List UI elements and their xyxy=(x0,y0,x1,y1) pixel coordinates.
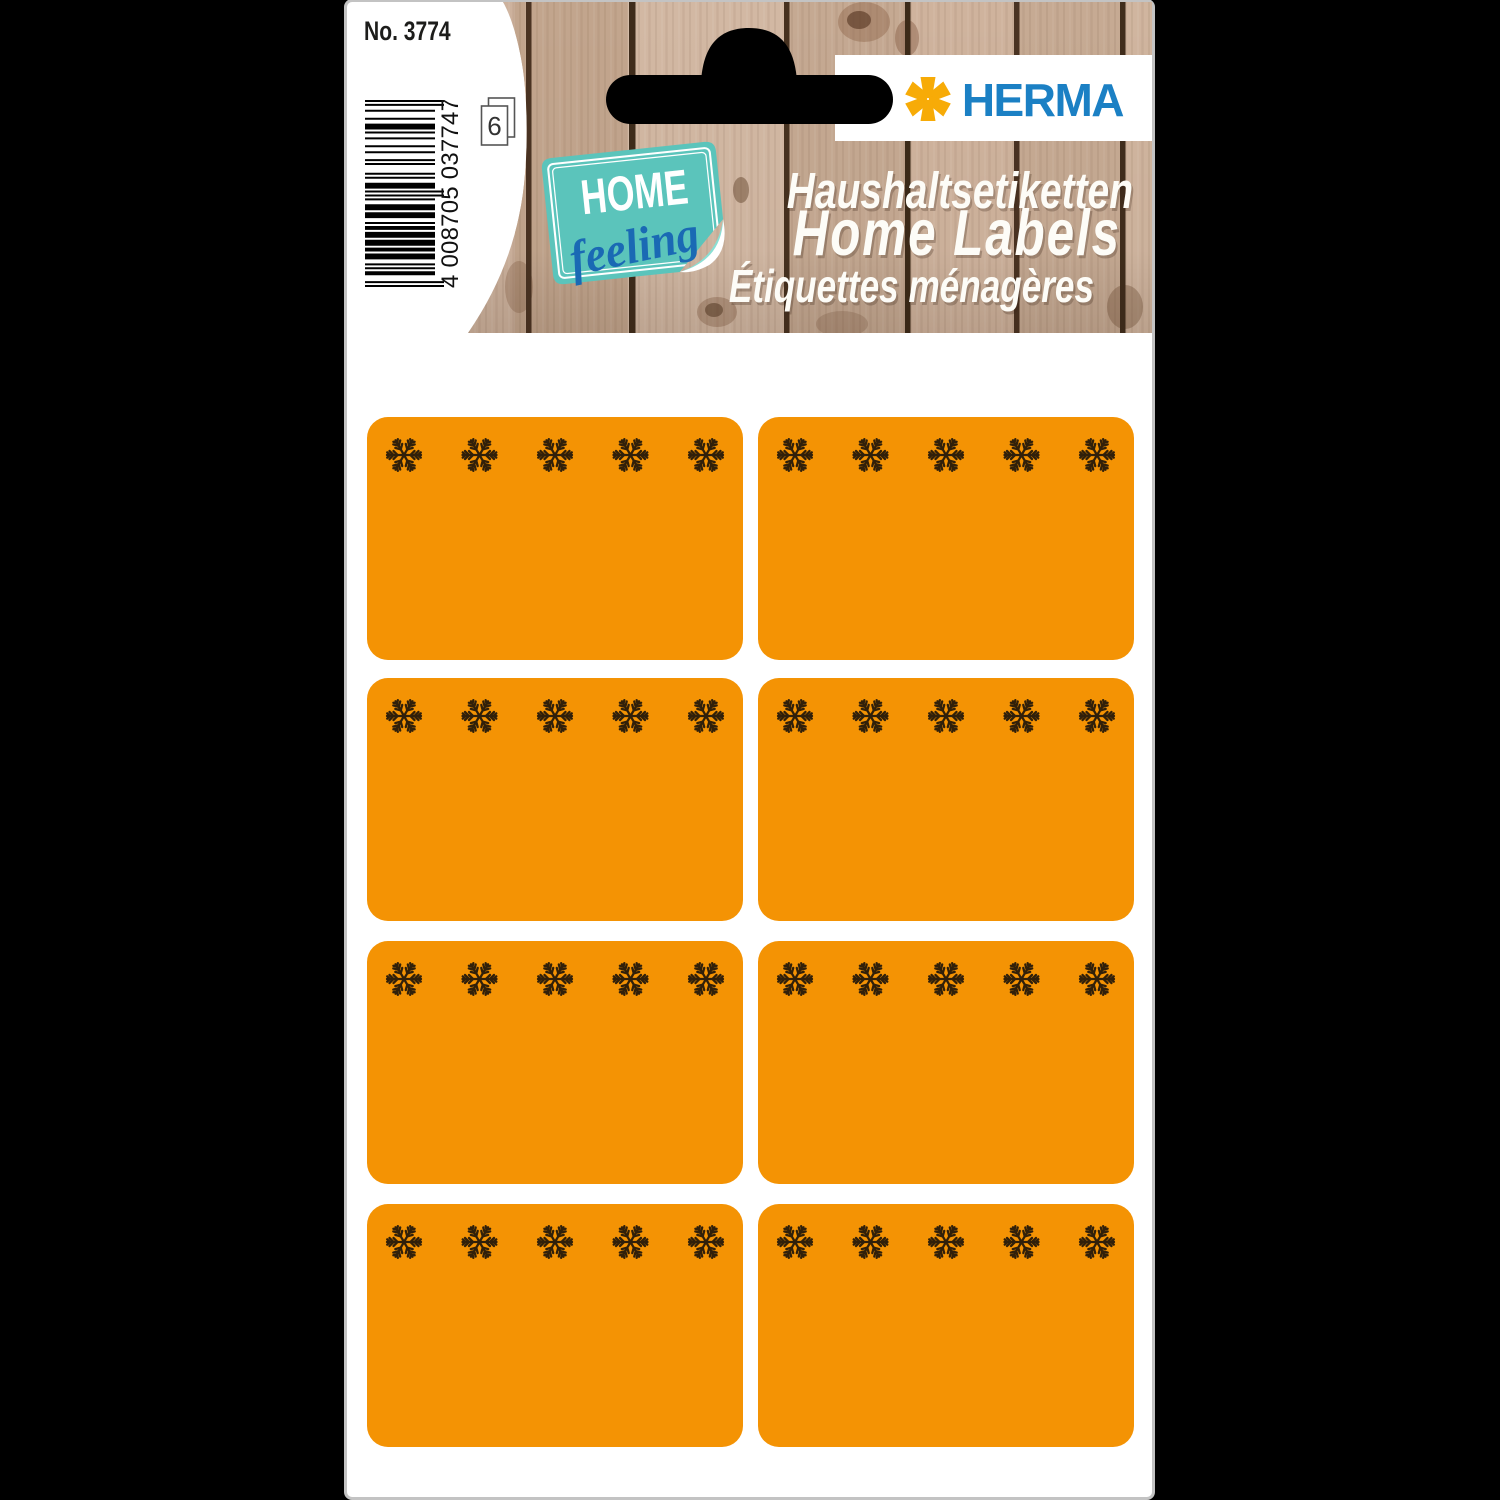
svg-text:Étiquettes ménagères: Étiquettes ménagères xyxy=(729,260,1094,312)
svg-text:HERMA: HERMA xyxy=(962,74,1123,126)
svg-text:4 008705 037747: 4 008705 037747 xyxy=(437,100,460,288)
svg-text:6: 6 xyxy=(487,111,501,141)
svg-text:Home Labels: Home Labels xyxy=(793,198,1121,270)
